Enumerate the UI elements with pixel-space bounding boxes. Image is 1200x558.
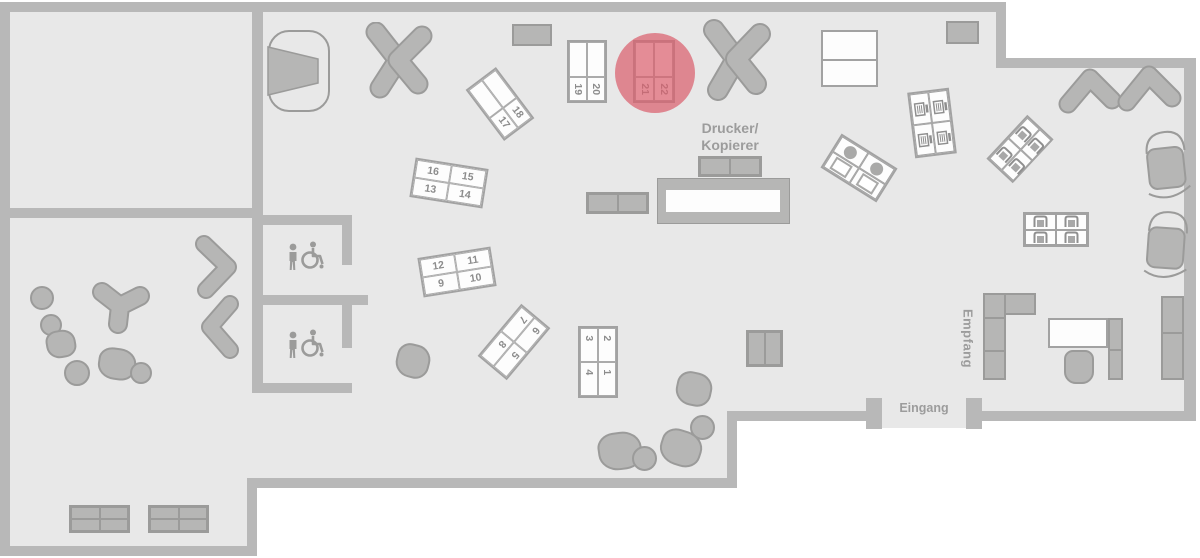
stool xyxy=(130,362,152,384)
table-cell xyxy=(748,332,765,365)
wing-sofa xyxy=(196,292,244,362)
wall xyxy=(0,2,10,556)
stool xyxy=(30,286,54,310)
desk-segment xyxy=(985,295,1004,319)
lounge-chair xyxy=(1137,204,1194,285)
side-table xyxy=(746,330,783,367)
desk-surface xyxy=(570,43,586,78)
printer-label-line1: Drucker/ xyxy=(660,120,800,137)
white-table xyxy=(821,30,878,87)
wc-wheelchair-icon xyxy=(300,240,324,270)
desk-surface xyxy=(588,43,604,78)
lounge-chair xyxy=(1136,123,1196,206)
desk-number: 20 xyxy=(588,78,604,100)
cabinet xyxy=(1161,296,1184,380)
cabinet xyxy=(1108,318,1123,380)
counter xyxy=(657,178,790,224)
wall xyxy=(737,411,868,421)
desk-2[interactable]: 2 xyxy=(598,328,616,362)
armchair-icon xyxy=(1056,214,1087,230)
office-floor-plan: 19 20 21 22 17 18 16 15 13 14 xyxy=(0,0,1200,558)
plant-trilobe-sofa xyxy=(88,278,152,334)
reception-desk-return xyxy=(1004,293,1036,315)
printer-cell xyxy=(700,158,730,175)
wall xyxy=(0,2,1006,12)
table-cell xyxy=(150,519,179,531)
desk-number: 19 xyxy=(570,78,586,100)
desk-3[interactable]: 3 xyxy=(580,328,598,362)
x-lounge-sofa xyxy=(696,18,774,102)
table-cell xyxy=(71,507,100,519)
wall-corridor xyxy=(252,2,263,393)
desk-10[interactable]: 10 xyxy=(457,267,494,290)
desk-19[interactable]: 19 xyxy=(569,42,587,101)
wall-wc xyxy=(252,383,352,393)
selected-desk-highlight xyxy=(615,33,695,113)
office-chair xyxy=(1064,350,1094,384)
armchair-icon xyxy=(1056,230,1087,246)
side-table xyxy=(512,24,552,46)
wall xyxy=(252,478,737,488)
wc-person-icon xyxy=(286,330,300,360)
printer-cell xyxy=(730,158,760,175)
wing-sofa xyxy=(1116,62,1182,114)
stool xyxy=(632,446,657,471)
desk-4[interactable]: 4 xyxy=(580,362,598,396)
table-cell xyxy=(100,507,129,519)
cabinet-divider xyxy=(1110,320,1121,351)
x-lounge-sofa xyxy=(360,22,436,100)
wing-sofa xyxy=(1058,66,1122,116)
printer-table xyxy=(698,156,762,177)
table-cell xyxy=(100,519,129,531)
workstation-icon xyxy=(932,121,955,154)
workstation-icon xyxy=(928,90,951,123)
desk-segment xyxy=(985,319,1004,352)
wall-wc xyxy=(342,215,352,265)
wall-wc xyxy=(342,305,352,348)
wall xyxy=(980,411,1196,421)
wall-wc xyxy=(263,215,352,225)
counter-top xyxy=(666,190,780,212)
wall xyxy=(727,411,737,488)
table-cell xyxy=(71,519,100,531)
stool xyxy=(64,360,90,386)
desk-group-19-20: 19 20 xyxy=(567,40,607,103)
printer-label: Drucker/ Kopierer xyxy=(660,120,800,154)
side-table xyxy=(946,21,979,44)
wall xyxy=(0,546,257,556)
table-cell xyxy=(179,507,208,519)
table-cell xyxy=(150,507,179,519)
table-cell xyxy=(618,194,648,212)
wc-person-icon xyxy=(286,242,300,272)
meeting-table xyxy=(148,505,209,533)
printer-label-line2: Kopierer xyxy=(660,137,800,154)
table-cell xyxy=(765,332,782,365)
desk-group-1-4: 3 2 4 1 xyxy=(578,326,618,398)
barrel-chair xyxy=(264,27,334,115)
armchair-table xyxy=(1023,212,1089,247)
wc-wheelchair-icon xyxy=(300,328,324,358)
wall-room-divider xyxy=(0,208,263,218)
workstation-table xyxy=(907,88,957,159)
entrance-door-post xyxy=(866,398,882,429)
side-table xyxy=(586,192,649,214)
table-divider xyxy=(823,32,876,61)
wall xyxy=(247,478,257,553)
wall-wc xyxy=(252,295,368,305)
desk-9[interactable]: 9 xyxy=(422,272,459,295)
desk-20[interactable]: 20 xyxy=(587,42,605,101)
white-desk xyxy=(1048,318,1108,348)
meeting-table xyxy=(69,505,130,533)
reception-label: Empfang xyxy=(961,304,976,374)
table-cell xyxy=(588,194,618,212)
armchair-icon xyxy=(1025,230,1056,246)
cabinet-divider xyxy=(1163,298,1182,334)
entrance-label: Eingang xyxy=(886,401,962,415)
desk-1[interactable]: 1 xyxy=(598,362,616,396)
armchair-icon xyxy=(1025,214,1056,230)
reception-desk xyxy=(983,293,1006,380)
table-cell xyxy=(179,519,208,531)
